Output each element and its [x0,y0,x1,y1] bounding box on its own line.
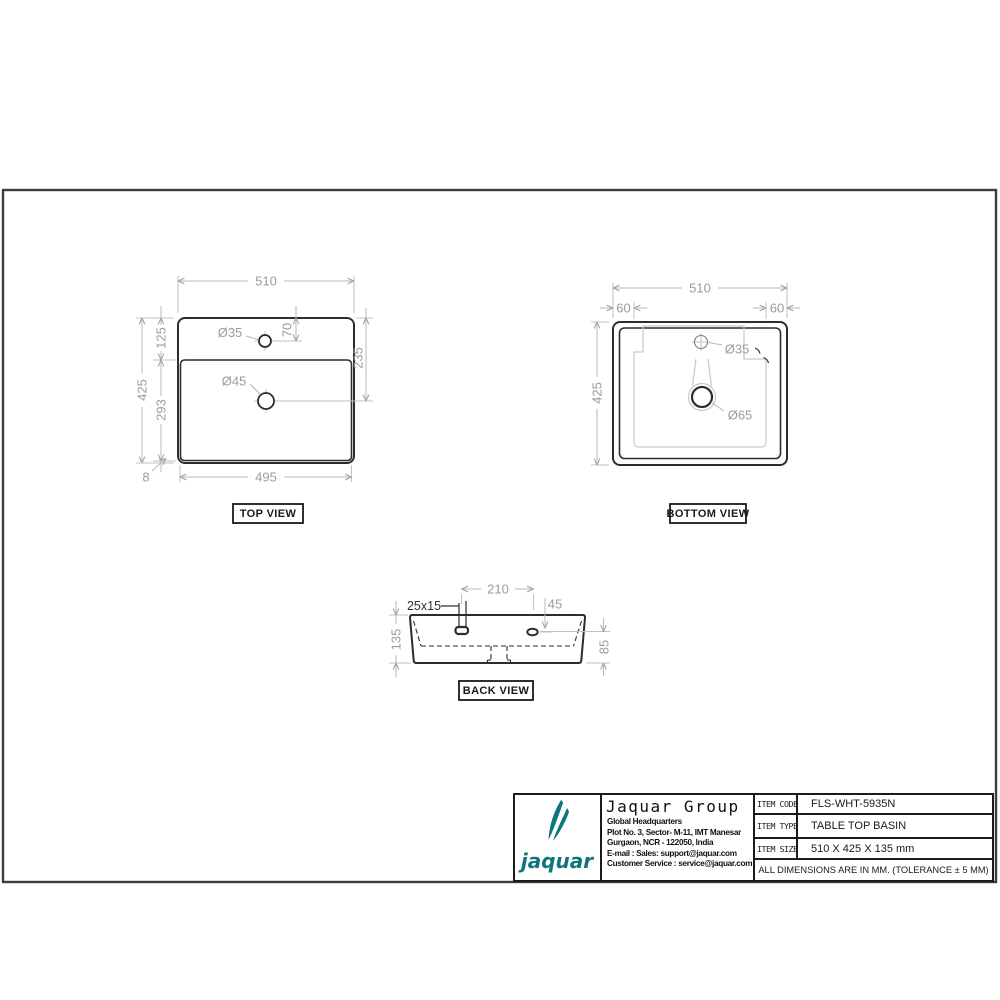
dim-top-rim-gap: 8 [142,470,149,485]
back-view-label: BACK VIEW [463,685,530,697]
item-info-table: ITEM CODE FLS-WHT-5935N ITEM TYPE TABLE … [755,795,992,880]
dim-top-bottom-width: 495 [255,470,277,485]
address-line: Global Headquarters [607,817,753,828]
bottom-view-label: BOTTOM VIEW [666,508,749,520]
dim-top-bowl-height: 293 [154,399,169,421]
item-size-value: 510 X 425 X 135 mm [798,839,992,858]
dim-back-hole-spacing: 210 [487,582,509,597]
item-type-row: ITEM TYPE TABLE TOP BASIN [755,815,992,839]
item-type-label: ITEM TYPE [755,815,798,837]
address-line: Gurgaon, NCR - 122050, India [607,838,753,849]
callout-bottom-faucet-hole: Ø35 [725,342,750,357]
dim-top-height: 425 [135,379,150,401]
tolerance-note: ALL DIMENSIONS ARE IN MM. (TOLERANCE ± 5… [755,860,992,879]
back-view-fixing-hole [527,629,537,636]
dim-top-drain-offset: 235 [351,347,366,369]
callout-bottom-drain-hole: Ø65 [728,408,753,423]
dim-bottom-inset-right: 60 [770,301,784,316]
dim-top-faucet-offset: 70 [280,323,295,337]
dim-back-hole-offset: 45 [548,597,562,612]
back-view-outline [410,615,585,663]
sheet-border [3,190,996,882]
back-view: 210 25x15 45 135 85 BACK VIE [389,582,612,701]
drawing-sheet: 510 425 125 293 8 70 [0,0,1000,1000]
callout-top-faucet-hole: Ø35 [218,325,243,340]
dim-top-rim-depth: 125 [154,327,169,349]
top-view-faucet-hole [259,335,271,347]
item-code-label: ITEM CODE [755,795,798,813]
dim-bottom-height: 425 [590,382,605,404]
company-name: Jaquar Group [606,797,753,816]
item-code-value: FLS-WHT-5935N [798,795,992,813]
address-line: Plot No. 3, Sector- M-11, IMT Manesar [607,828,753,839]
top-view-label: TOP VIEW [240,508,297,520]
dim-bottom-inset-left: 60 [616,301,630,316]
top-view: 510 425 125 293 8 70 [135,274,374,524]
jaquar-logo-text: jaquar [518,849,594,873]
logo-cell: jaquar [515,795,602,880]
callout-top-drain-hole: Ø45 [222,374,247,389]
item-type-value: TABLE TOP BASIN [798,815,992,837]
company-cell: Jaquar Group Global Headquarters Plot No… [602,795,755,880]
top-view-drain-hole [258,393,274,409]
jaquar-logo: jaquar [515,795,600,878]
dim-bottom-width: 510 [689,281,711,296]
item-size-label: ITEM SIZE [755,839,798,858]
item-code-row: ITEM CODE FLS-WHT-5935N [755,795,992,815]
bottom-view: 510 60 60 425 Ø35 Ø65 BOTTOM VIEW [590,281,801,524]
address-line: Customer Service : service@jaquar.com [607,859,753,870]
dim-back-hole-height: 85 [597,640,612,654]
item-size-row: ITEM SIZE 510 X 425 X 135 mm [755,839,992,860]
dim-top-width: 510 [255,274,277,289]
dim-back-height: 135 [389,629,404,651]
back-view-slot [456,627,469,634]
title-block: jaquar Jaquar Group Global Headquarters … [513,793,994,882]
bottom-view-drain-hole [692,387,712,407]
address-line: E-mail : Sales: support@jaquar.com [607,849,753,860]
callout-back-slot-size: 25x15 [407,599,441,613]
